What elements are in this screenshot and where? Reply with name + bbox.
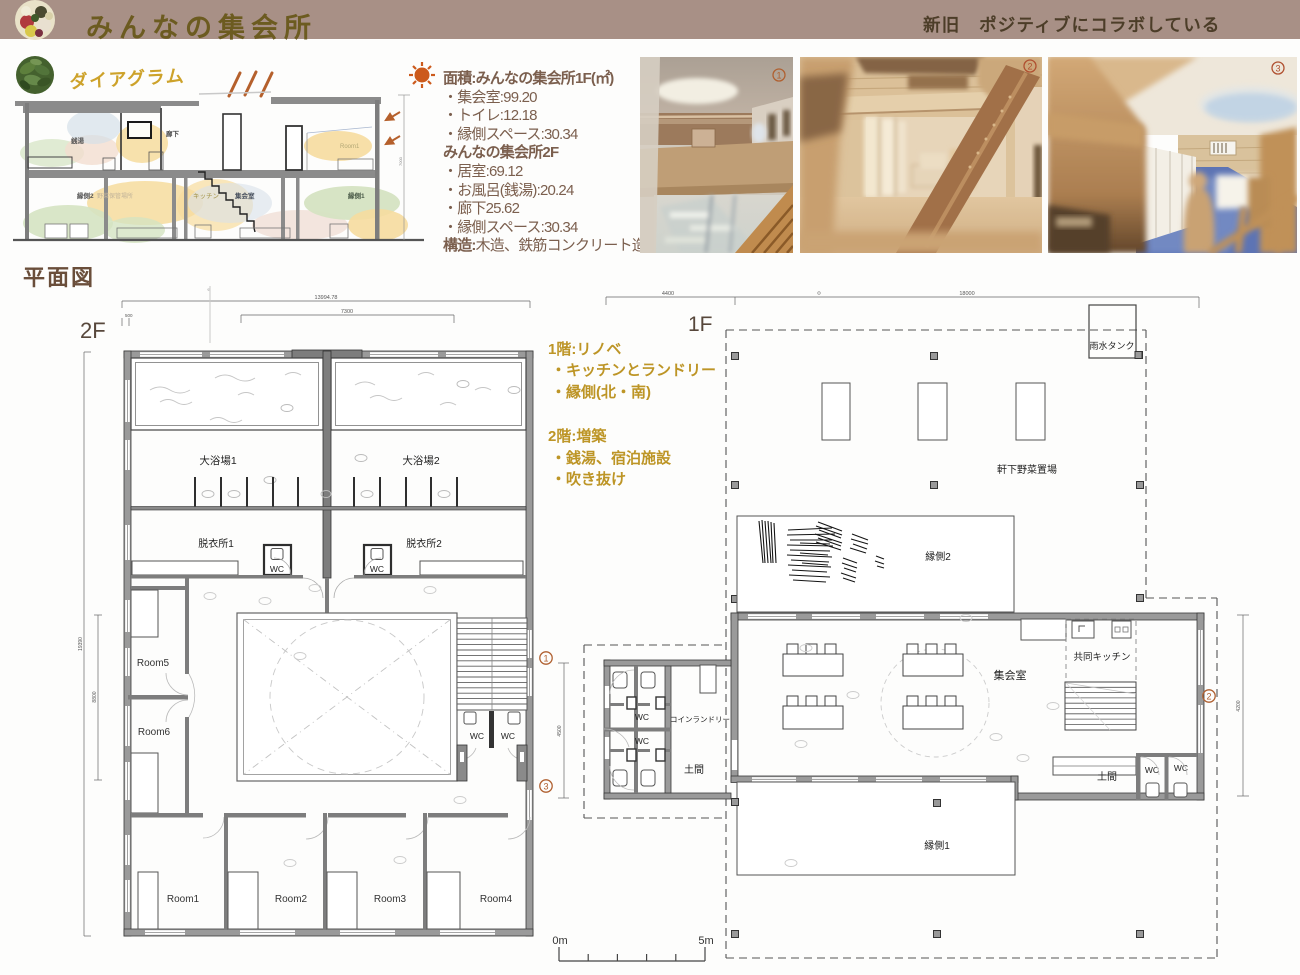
- svg-text:コインランドリー: コインランドリー: [670, 715, 730, 724]
- svg-text:脱衣所1: 脱衣所1: [198, 537, 234, 550]
- svg-text:脱衣所2: 脱衣所2: [406, 537, 442, 550]
- svg-text:7300: 7300: [341, 309, 353, 315]
- svg-text:キッチン: キッチン: [193, 192, 219, 200]
- svg-text:ダイアグラム: ダイアグラム: [69, 65, 186, 92]
- svg-text:銭湯: 銭湯: [70, 136, 85, 145]
- svg-text:WC: WC: [370, 564, 384, 574]
- svg-text:共同キッチン: 共同キッチン: [1073, 652, 1130, 663]
- svg-text:Room1: Room1: [340, 144, 360, 150]
- svg-text:0m: 0m: [552, 935, 567, 947]
- svg-text:4400: 4400: [662, 291, 674, 297]
- svg-text:18000: 18000: [959, 291, 974, 297]
- svg-text:Φ: Φ: [207, 287, 210, 292]
- svg-text:4200: 4200: [1236, 700, 1242, 711]
- svg-text:Room2: Room2: [275, 894, 308, 905]
- svg-text:WC: WC: [270, 564, 284, 574]
- svg-text:Room1: Room1: [167, 894, 200, 905]
- svg-text:WC: WC: [635, 712, 649, 722]
- svg-text:廊下: 廊下: [166, 129, 180, 138]
- svg-text:7000: 7000: [398, 156, 403, 166]
- svg-text:Room5: Room5: [137, 658, 170, 669]
- svg-text:縁側2: 縁側2: [77, 191, 94, 200]
- svg-text:2: 2: [1206, 692, 1211, 702]
- svg-text:Room6: Room6: [138, 727, 171, 738]
- svg-text:・キッチンとランドリー: ・キッチンとランドリー: [551, 362, 716, 379]
- svg-text:集会室: 集会室: [234, 191, 255, 200]
- svg-text:雨水タンク: 雨水タンク: [1089, 340, 1134, 351]
- svg-text:19390: 19390: [78, 637, 84, 651]
- svg-text:集会室: 集会室: [994, 668, 1027, 682]
- svg-text:Room4: Room4: [480, 894, 513, 905]
- svg-text:Room3: Room3: [374, 894, 407, 905]
- svg-text:縁側1: 縁側1: [924, 839, 950, 852]
- svg-text:WC: WC: [635, 736, 649, 746]
- svg-text:・縁側(北・南): ・縁側(北・南): [551, 383, 651, 401]
- svg-text:500: 500: [125, 313, 133, 318]
- svg-text:軒下野菜置場: 軒下野菜置場: [997, 463, 1057, 476]
- svg-text:大浴場1: 大浴場1: [199, 454, 236, 467]
- svg-text:1: 1: [776, 71, 781, 81]
- svg-text:土間: 土間: [1097, 770, 1117, 783]
- svg-text:3: 3: [1275, 64, 1280, 74]
- svg-text:8800: 8800: [92, 691, 98, 702]
- svg-text:WC: WC: [470, 731, 484, 741]
- svg-text:1階:リノベ: 1階:リノベ: [548, 340, 621, 358]
- svg-text:2F: 2F: [80, 318, 106, 343]
- svg-text:・銭湯、宿泊施設: ・銭湯、宿泊施設: [551, 449, 672, 467]
- svg-text:野菜保管場所: 野菜保管場所: [97, 192, 133, 200]
- svg-text:WC: WC: [501, 731, 515, 741]
- svg-text:1F: 1F: [688, 313, 713, 336]
- svg-text:大浴場2: 大浴場2: [402, 454, 439, 467]
- svg-text:2階:増築: 2階:増築: [548, 427, 607, 445]
- svg-text:土間: 土間: [684, 763, 704, 776]
- svg-text:縁側2: 縁側2: [925, 550, 951, 563]
- svg-text:13994.78: 13994.78: [315, 295, 338, 301]
- svg-text:5m: 5m: [698, 935, 713, 947]
- svg-text:2: 2: [1027, 62, 1032, 72]
- svg-text:Φ: Φ: [817, 291, 821, 297]
- svg-text:・吹き抜け: ・吹き抜け: [551, 470, 626, 488]
- svg-text:縁側1: 縁側1: [348, 191, 365, 200]
